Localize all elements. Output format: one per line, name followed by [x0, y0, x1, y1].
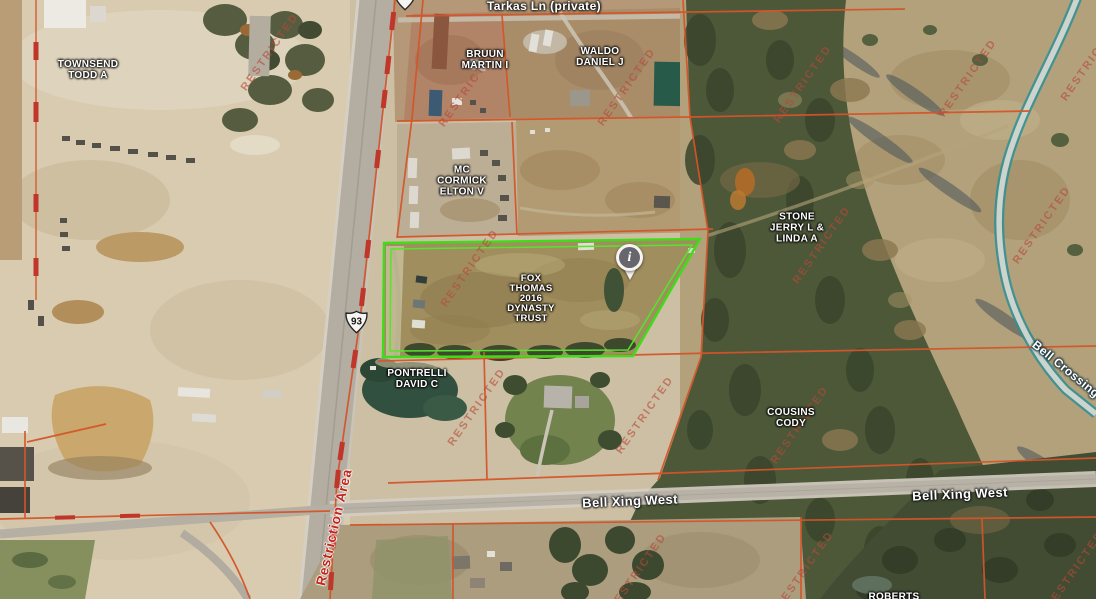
- restricted-watermark: RESTRICTED: [446, 366, 509, 448]
- restricted-watermark: RESTRICTED: [607, 531, 670, 599]
- road-label-bell-xing-west: Bell Xing West: [582, 491, 678, 510]
- restricted-watermark: RESTRICTED: [774, 529, 837, 599]
- parcel-label-townsend: TOWNSEND TODD A: [58, 59, 119, 81]
- parcel-label-roberts: ROBERTS: [869, 592, 920, 599]
- restricted-watermark: RESTRICTED: [596, 46, 659, 128]
- marker-circle: i: [616, 244, 643, 271]
- parcel-label-stone: STONE JERRY L & LINDA A: [770, 212, 824, 245]
- info-icon: i: [628, 251, 632, 265]
- marker-disc: i: [619, 247, 640, 268]
- restricted-watermark: RESTRICTED: [1059, 21, 1096, 103]
- restricted-watermark: RESTRICTED: [769, 384, 832, 466]
- restricted-watermark: RESTRICTED: [937, 37, 1000, 119]
- restricted-watermark: RESTRICTED: [239, 11, 302, 93]
- map-viewport[interactable]: RESTRICTED RESTRICTED RESTRICTED RESTRIC…: [0, 0, 1096, 599]
- parcel-label-pontrelli: PONTRELLI DAVID C: [387, 368, 446, 390]
- label-overlay: RESTRICTED RESTRICTED RESTRICTED RESTRIC…: [0, 0, 1096, 599]
- restricted-watermark: RESTRICTED: [437, 47, 500, 129]
- road-label-bell-crossing: Bell Crossing: [1030, 338, 1096, 401]
- parcel-label-bruun: BRUUN MARTIN I: [462, 49, 509, 71]
- parcel-info-marker[interactable]: i: [616, 244, 644, 286]
- restricted-watermark: RESTRICTED: [791, 204, 854, 286]
- restricted-watermark: RESTRICTED: [1044, 529, 1096, 599]
- road-label-bell-xing-west: Bell Xing West: [912, 484, 1008, 503]
- restricted-watermark: RESTRICTED: [1011, 184, 1074, 266]
- parcel-label-mccormick: MC CORMICK ELTON V: [437, 165, 487, 198]
- restriction-area-label: Restriction Area: [313, 467, 355, 587]
- road-label-tarkas-ln: Tarkas Ln (private): [487, 0, 601, 13]
- parcel-label-fox-thomas-trust: FOX THOMAS 2016 DYNASTY TRUST: [507, 274, 555, 324]
- parcel-label-waldo: WALDO DANIEL J: [576, 46, 624, 68]
- restricted-watermark: RESTRICTED: [772, 43, 835, 125]
- restricted-watermark: RESTRICTED: [614, 374, 677, 456]
- restricted-watermark: RESTRICTED: [439, 227, 502, 309]
- parcel-label-cousins: COUSINS CODY: [767, 407, 815, 429]
